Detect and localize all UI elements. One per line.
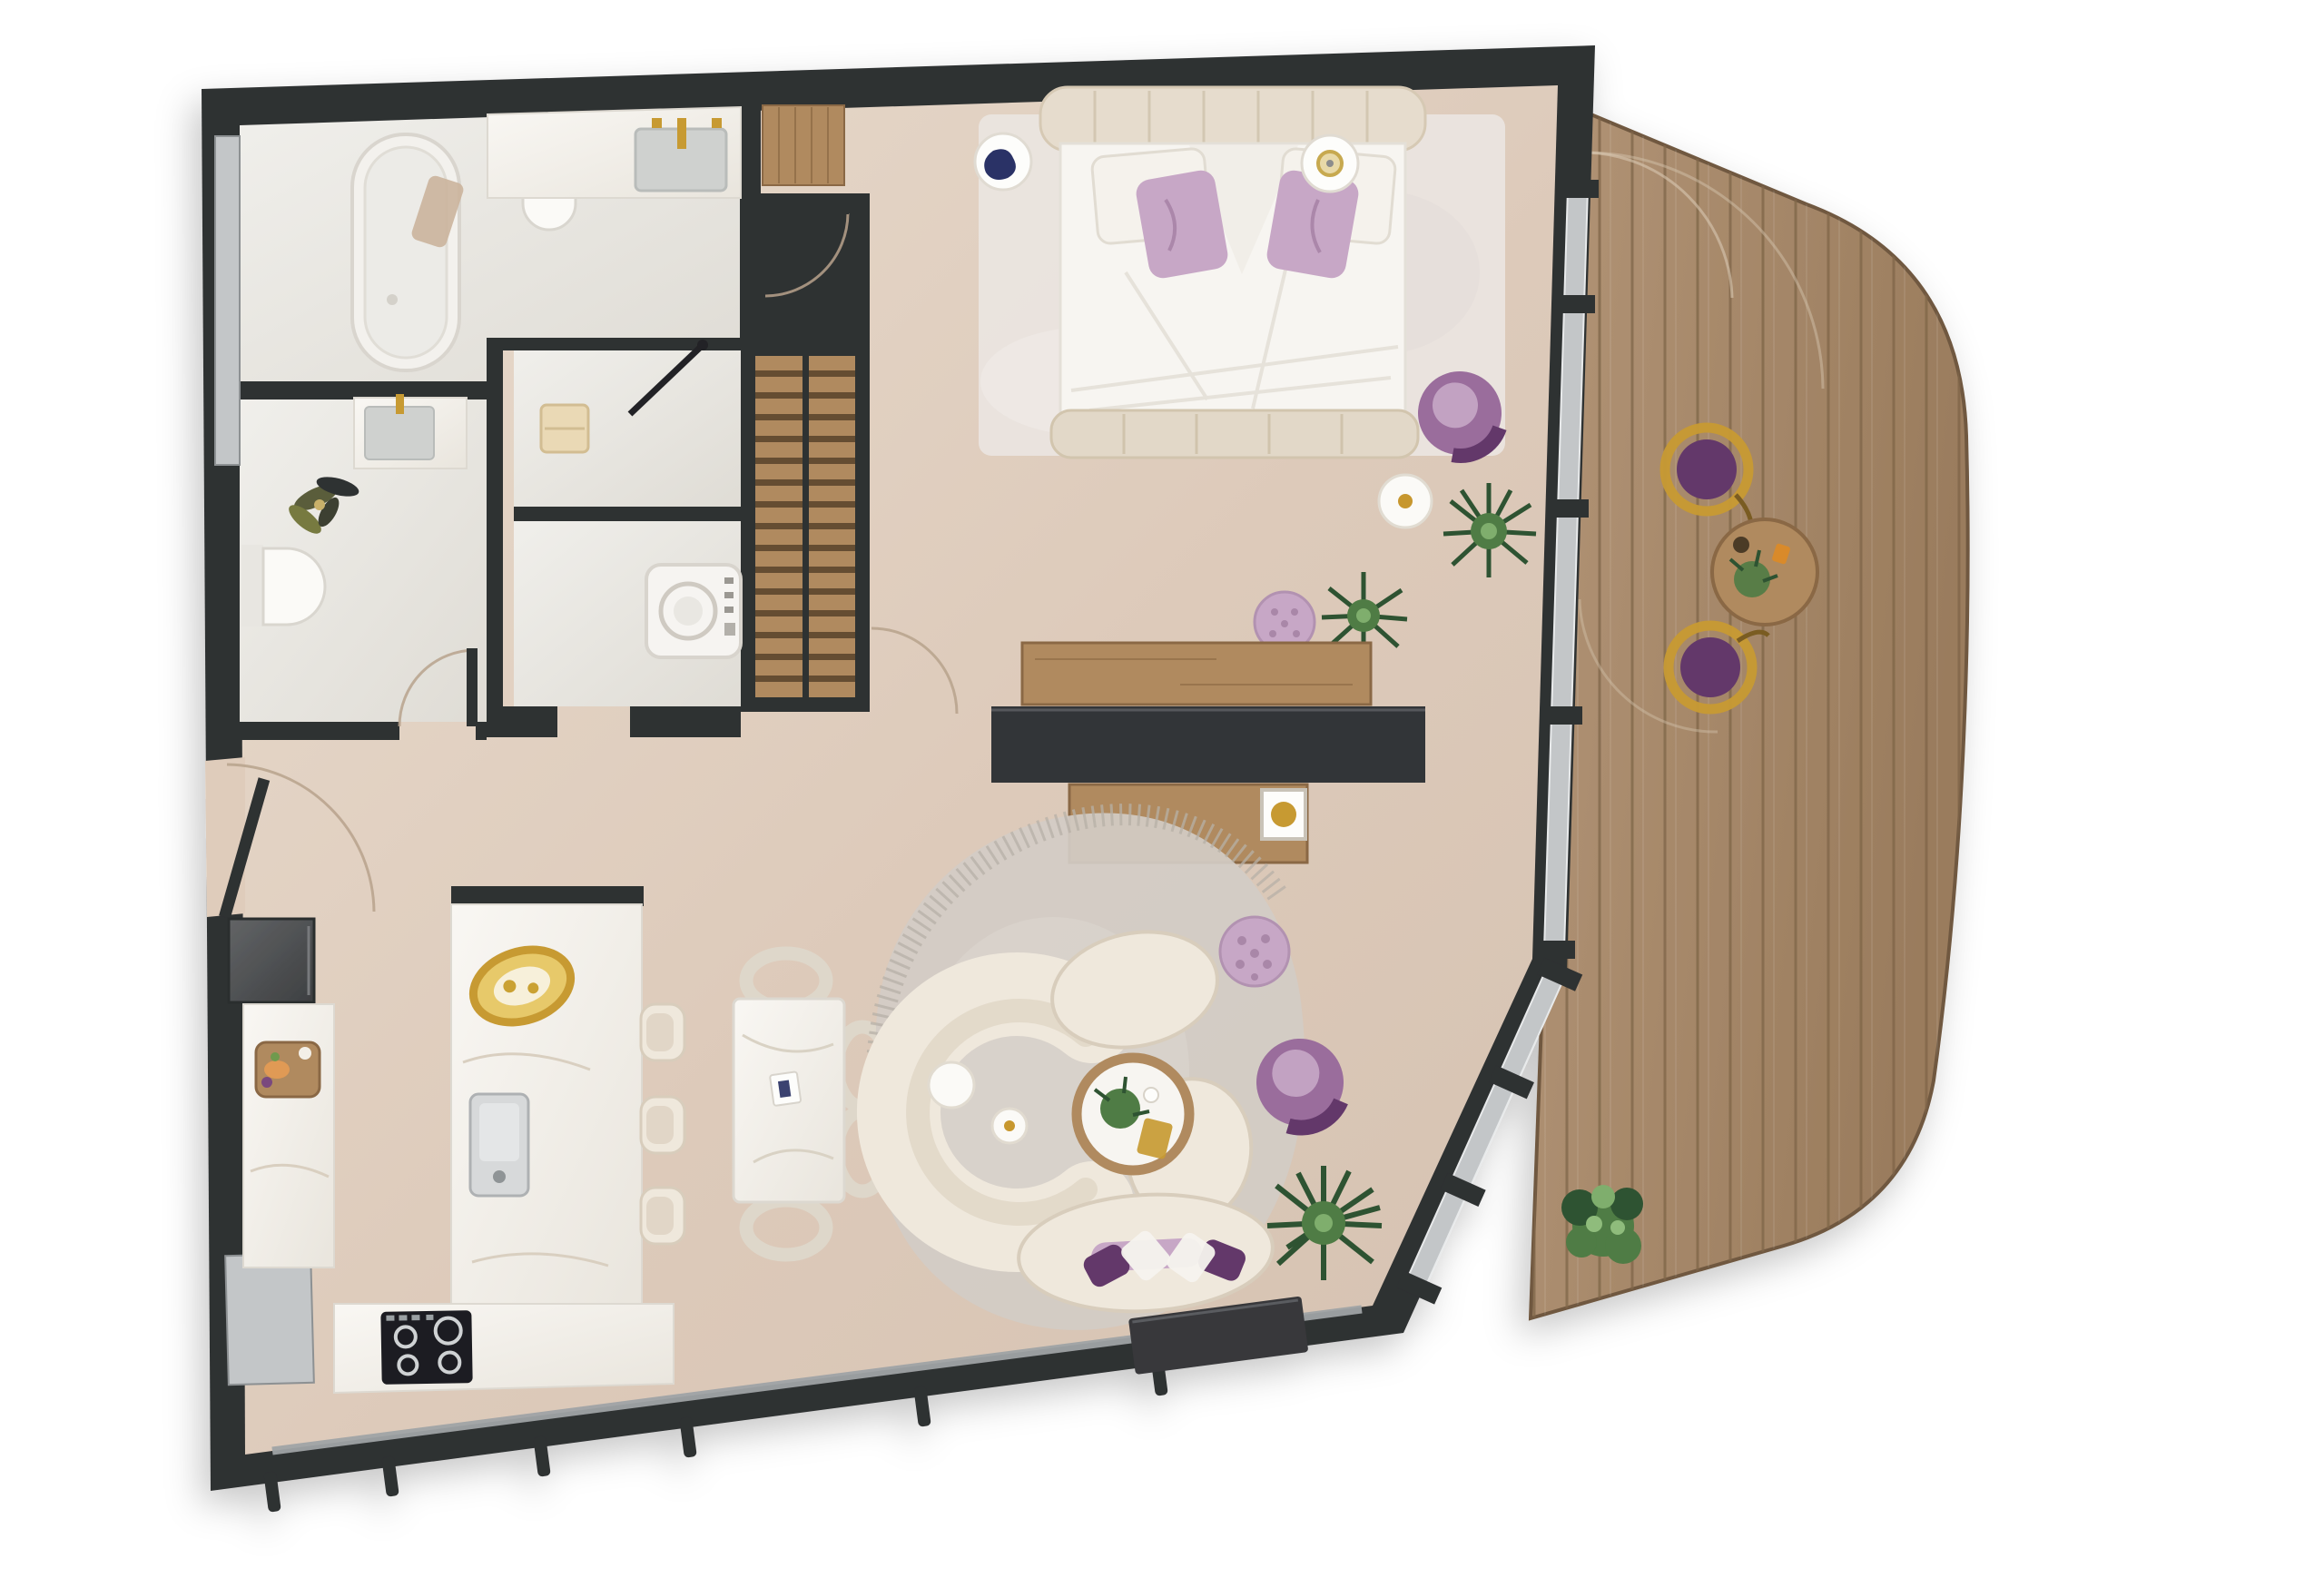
wall-utility-bottom-right bbox=[630, 706, 741, 737]
bathtub-drain bbox=[387, 294, 398, 305]
cutting-board bbox=[256, 1042, 320, 1097]
bedroom-side-table bbox=[1379, 475, 1432, 528]
nightstand-plate-left bbox=[975, 133, 1031, 190]
right-wall-mullion-1 bbox=[1559, 180, 1599, 198]
gold-art-frame bbox=[1262, 790, 1305, 839]
kitchen-window bbox=[225, 1254, 314, 1385]
wall-bathroom-closet-chunk bbox=[740, 193, 870, 345]
bistro-table bbox=[1712, 519, 1817, 625]
fridge bbox=[229, 919, 314, 1002]
wall-mid-vertical bbox=[487, 338, 503, 737]
wc-gold-faucet bbox=[396, 394, 404, 414]
utility-room bbox=[646, 565, 741, 657]
bar-stool bbox=[641, 1188, 684, 1244]
living-pouf bbox=[1220, 917, 1289, 986]
right-wall-mullion-5 bbox=[1535, 941, 1575, 959]
wc-toilet bbox=[241, 545, 325, 626]
bar-stools bbox=[641, 1004, 684, 1244]
bathroom-vanity bbox=[487, 107, 741, 198]
terrace-shrub bbox=[1561, 1185, 1643, 1264]
bar-stool bbox=[641, 1097, 684, 1153]
wall-wc-bottom-left bbox=[240, 722, 399, 740]
footboard bbox=[1051, 410, 1418, 458]
entry-doormat bbox=[763, 105, 844, 185]
nightstand-plate-right bbox=[1302, 135, 1358, 192]
washing-machine bbox=[646, 565, 741, 657]
wc-door-leaf bbox=[467, 648, 478, 726]
wardrobe bbox=[755, 356, 855, 697]
plan-root bbox=[202, 45, 1979, 1513]
island-cap bbox=[451, 886, 644, 906]
table-book-decor bbox=[770, 1071, 801, 1106]
gold-faucet bbox=[677, 118, 686, 149]
entry-opening bbox=[205, 757, 245, 917]
right-wall-mullion-3 bbox=[1549, 499, 1589, 518]
gold-knob-left bbox=[652, 118, 662, 128]
floor-plan-svg bbox=[0, 0, 2324, 1588]
wardrobe-divider bbox=[803, 356, 809, 697]
bar-stool bbox=[641, 1004, 684, 1060]
media-partition bbox=[991, 706, 1425, 783]
island-sink bbox=[470, 1094, 528, 1196]
double-bed bbox=[1040, 87, 1425, 458]
entry-top-door-leaf bbox=[765, 201, 849, 214]
pillow-purple-left bbox=[1134, 168, 1230, 281]
deck-planks bbox=[1525, 91, 1979, 1335]
right-wall-mullion-2 bbox=[1555, 295, 1595, 313]
wall-utility-bottom-left bbox=[501, 706, 557, 737]
gold-knob-right bbox=[712, 118, 722, 128]
terrace bbox=[1525, 91, 1979, 1335]
shower-door-pivot bbox=[697, 340, 708, 350]
floor-plan-canvas bbox=[0, 0, 2324, 1588]
wall-shower-utility-divider bbox=[514, 507, 741, 521]
right-wall-mullion-4 bbox=[1542, 706, 1582, 725]
bathroom-window bbox=[215, 136, 240, 465]
wood-console bbox=[1022, 643, 1371, 705]
coffee-table bbox=[1077, 1058, 1189, 1170]
cooktop bbox=[380, 1310, 472, 1385]
wc-vanity bbox=[354, 394, 467, 469]
